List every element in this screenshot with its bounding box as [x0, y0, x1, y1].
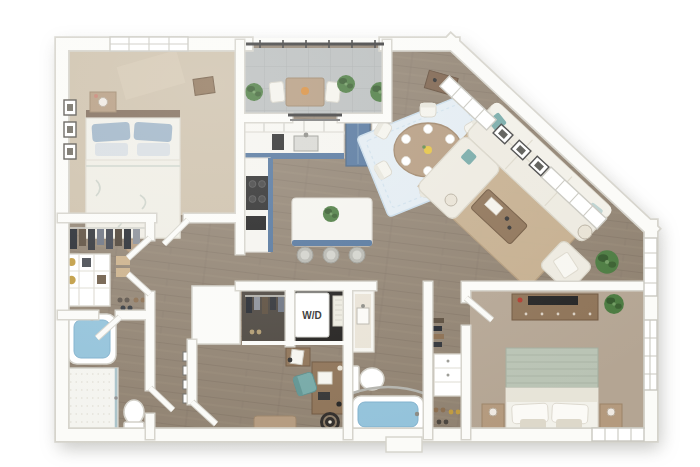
floor-plan-3d-render: W/D [0, 0, 700, 467]
floor-plan-canvas: W/D [0, 0, 700, 467]
ambient-light-overlay [0, 0, 700, 467]
